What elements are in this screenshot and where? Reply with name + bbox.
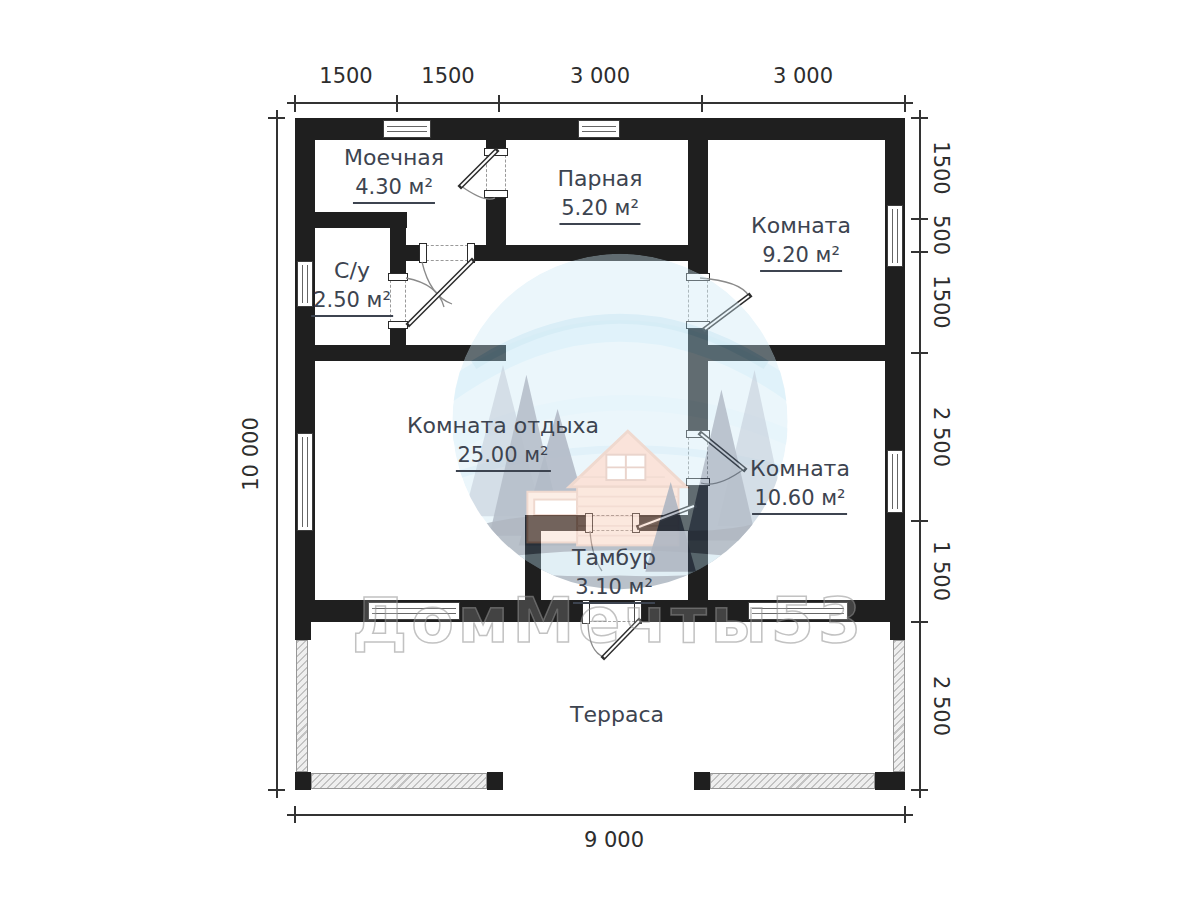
room-label-terrace: Терраса	[570, 701, 664, 730]
dim-line-right	[919, 110, 921, 798]
dim-tick	[268, 789, 285, 791]
dim-line-top	[287, 102, 913, 104]
room-area: 3.10 м²	[573, 574, 655, 604]
dim-tick	[701, 95, 703, 112]
room-area: 2.50 м²	[311, 287, 393, 317]
room-name: Комната	[750, 455, 850, 484]
dim-top-2: 1500	[421, 64, 474, 88]
dim-tick	[294, 806, 296, 823]
room-label-room2: Комната 10.60 м²	[750, 455, 850, 515]
room-area: 4.30 м²	[353, 174, 435, 204]
dim-right-5: 1 500	[929, 541, 953, 601]
dim-tick	[911, 789, 928, 791]
room-name: Комната	[751, 212, 851, 241]
dim-tick	[904, 95, 906, 112]
room-area: 25.00 м²	[455, 442, 550, 472]
dim-tick	[911, 621, 928, 623]
dim-tick	[911, 218, 928, 220]
room-name: Парная	[557, 165, 642, 194]
room-label-wc: С/у 2.50 м²	[311, 257, 393, 317]
room-name: Терраса	[570, 701, 664, 730]
dim-top-4: 3 000	[773, 64, 833, 88]
door-swing-symbols	[0, 0, 1200, 900]
dim-top-3: 3 000	[570, 64, 630, 88]
dim-right-6: 2 500	[929, 676, 953, 736]
room-label-lounge: Комната отдыха 25.00 м²	[407, 412, 599, 472]
room-area: 5.20 м²	[559, 195, 641, 225]
room-name: Комната отдыха	[407, 412, 599, 441]
room-area: 10.60 м²	[752, 485, 847, 515]
dim-right-3: 1500	[929, 275, 953, 328]
dim-tick	[904, 806, 906, 823]
dim-right-1: 1500	[929, 141, 953, 194]
dim-top-1: 1500	[319, 64, 372, 88]
dim-left-total: 10 000	[239, 417, 263, 490]
dim-bottom-total: 9 000	[584, 828, 644, 852]
dim-tick	[911, 520, 928, 522]
dim-tick	[396, 95, 398, 112]
dim-tick	[498, 95, 500, 112]
dim-tick	[911, 117, 928, 119]
room-label-steamroom: Парная 5.20 м²	[557, 165, 642, 225]
room-name: Моечная	[344, 144, 444, 173]
room-label-tambour: Тамбур 3.10 м²	[572, 544, 656, 604]
dim-line-left	[276, 110, 278, 798]
dim-line-bottom	[287, 814, 913, 816]
dim-right-2: 500	[929, 215, 953, 255]
dim-tick	[911, 251, 928, 253]
dim-tick	[911, 352, 928, 354]
room-label-room1: Комната 9.20 м²	[751, 212, 851, 272]
dim-right-4: 2 500	[929, 407, 953, 467]
dim-tick	[294, 95, 296, 112]
room-label-washroom: Моечная 4.30 м²	[344, 144, 444, 204]
room-name: С/у	[311, 257, 393, 286]
floor-plan: ДомМечты53 Моечная 4.30 м² Парная 5.20 м…	[0, 0, 1200, 900]
room-name: Тамбур	[572, 544, 656, 573]
room-area: 9.20 м²	[760, 242, 842, 272]
dim-tick	[268, 117, 285, 119]
